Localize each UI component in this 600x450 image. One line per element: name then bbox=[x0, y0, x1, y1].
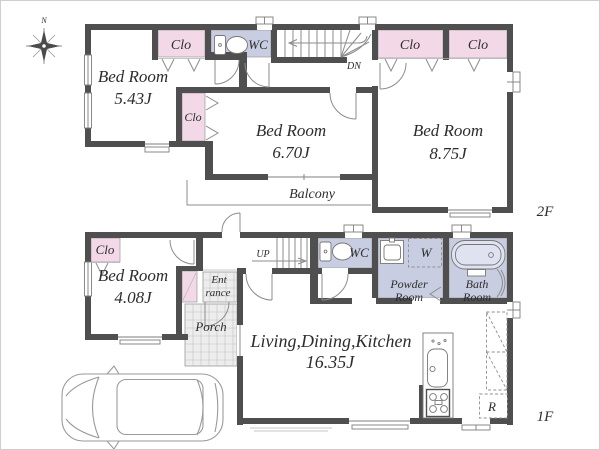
bedroom-small-area: 5.43J bbox=[114, 89, 153, 108]
bedroom-1f-name: Bed Room bbox=[98, 266, 168, 285]
bath-label-line1: Bath bbox=[466, 277, 489, 291]
car-icon bbox=[62, 366, 223, 449]
floor2-label: 2F bbox=[537, 204, 555, 220]
floor2-plan: Bed Room 5.43J Clo WC DN Clo Clo Bed Roo… bbox=[85, 17, 555, 220]
ldk-area: 16.35J bbox=[306, 352, 356, 372]
powder-label-line2: Room bbox=[394, 290, 423, 304]
floorplan-svg: N bbox=[0, 0, 600, 450]
bedroom-mid-name: Bed Room bbox=[256, 121, 326, 140]
bath-label-line2: Room bbox=[462, 290, 491, 304]
stairs-up-label: UP bbox=[256, 249, 269, 260]
staircase-2f bbox=[285, 30, 371, 57]
refrigerator-label: R bbox=[487, 399, 496, 414]
wc-label-1f: WC bbox=[349, 245, 369, 260]
porch-label: Porch bbox=[194, 319, 226, 334]
powder-label-line1: Powder bbox=[389, 277, 428, 291]
sink-icon-powder bbox=[381, 238, 404, 264]
washer-label: W bbox=[421, 245, 433, 260]
entrance-label-line1: Ent bbox=[210, 274, 227, 286]
floor1-plan: Clo Bed Room 4.08J Ent rance Porch UP WC… bbox=[85, 213, 555, 431]
ldk-name: Living,Dining,Kitchen bbox=[250, 331, 412, 351]
balcony-label: Balcony bbox=[289, 187, 336, 202]
porch-tiles bbox=[185, 304, 237, 366]
balcony-outline bbox=[187, 180, 371, 205]
kitchen-counter bbox=[423, 333, 453, 418]
compass-north-label: N bbox=[40, 16, 47, 25]
closet3-label: Clo bbox=[468, 38, 488, 53]
bedroom-large-area: 8.75J bbox=[429, 144, 468, 163]
pantry-shelves-outline bbox=[487, 312, 508, 390]
entrance-label-line2: rance bbox=[205, 287, 230, 299]
walls-2f bbox=[85, 24, 513, 213]
bedroom-large-name: Bed Room bbox=[413, 121, 483, 140]
compass-icon: N bbox=[26, 16, 62, 64]
stove-icon bbox=[427, 390, 450, 417]
bedroom-mid-area: 6.70J bbox=[272, 143, 311, 162]
closet1-label: Clo bbox=[171, 38, 191, 53]
bedroom-small-name: Bed Room bbox=[98, 67, 168, 86]
bedroom-1f-area: 4.08J bbox=[114, 288, 153, 307]
closet4-label: Clo bbox=[184, 110, 201, 124]
closet-1f-label: Clo bbox=[96, 242, 115, 257]
stairs-dn-label: DN bbox=[346, 61, 362, 72]
toilet-icon-2f bbox=[215, 36, 248, 55]
floorplan-image: N bbox=[0, 0, 600, 450]
toilet-icon-1f bbox=[320, 242, 353, 261]
closet2-label: Clo bbox=[400, 38, 420, 53]
wc-label-2f: WC bbox=[248, 37, 268, 52]
floor1-label: 1F bbox=[537, 409, 555, 425]
